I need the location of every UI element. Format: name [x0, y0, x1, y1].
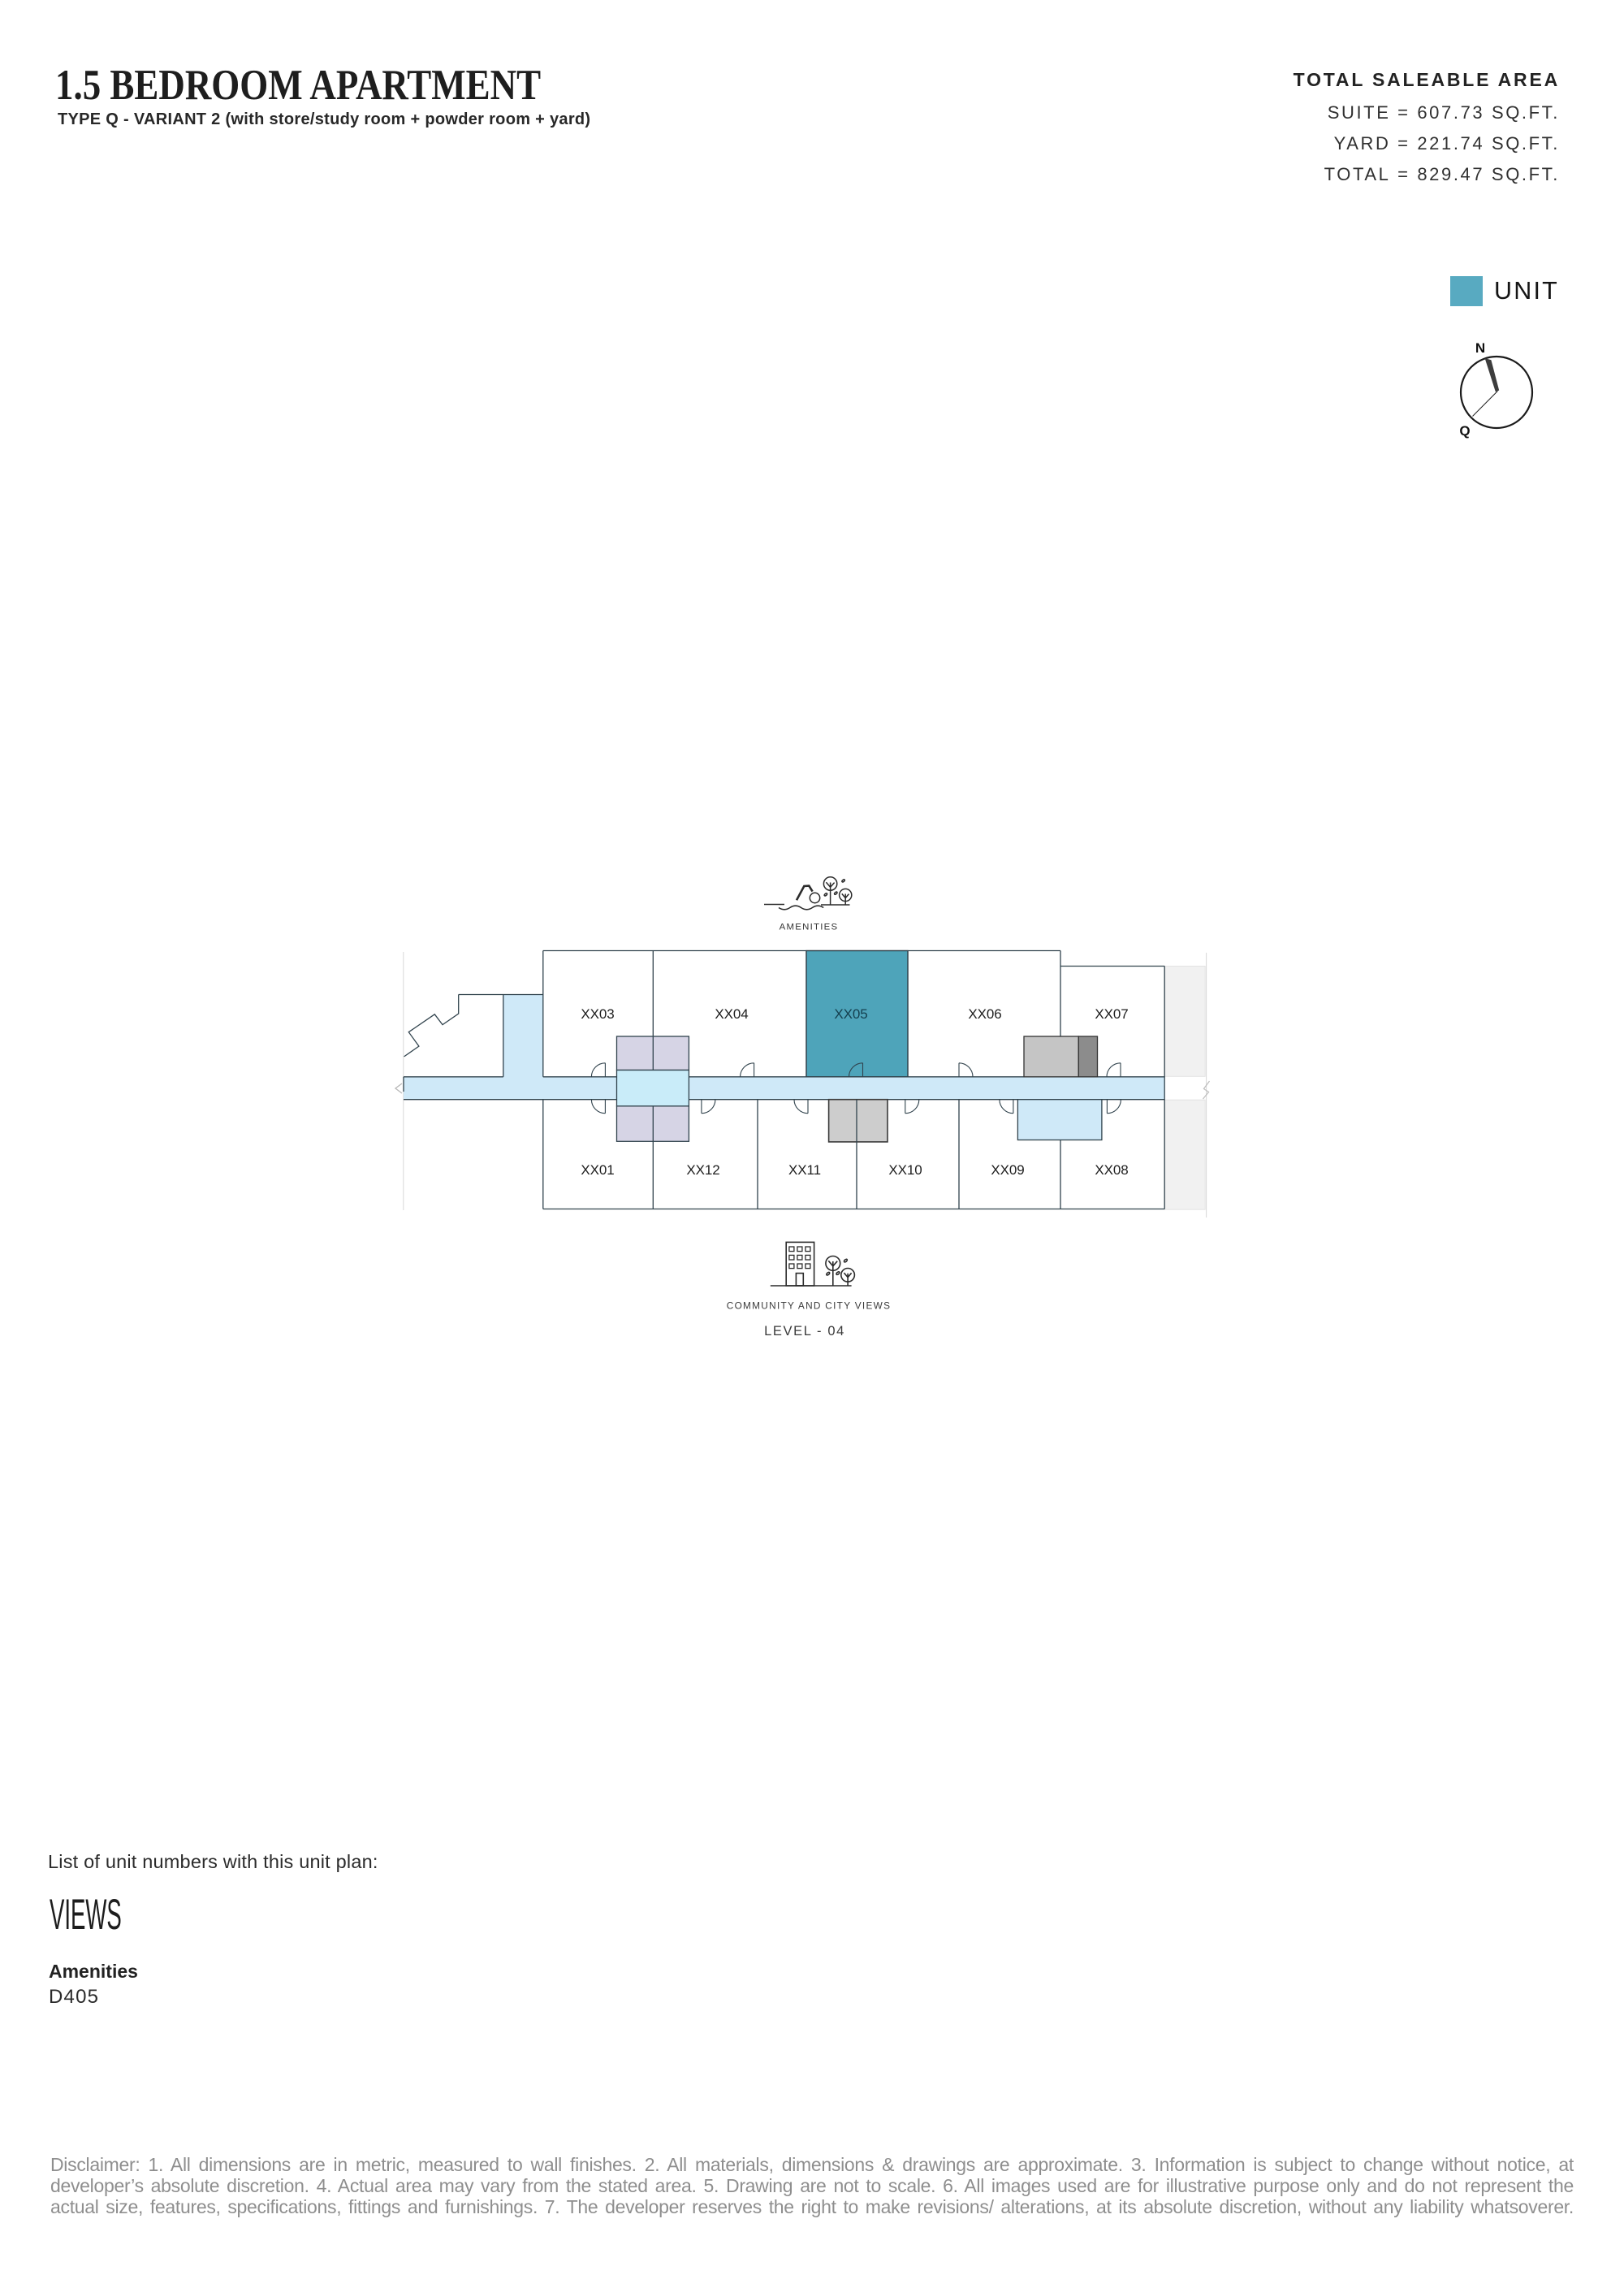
- svg-text:XX05: XX05: [834, 1006, 867, 1022]
- svg-text:XX04: XX04: [715, 1006, 748, 1022]
- svg-text:LEVEL - 04: LEVEL - 04: [764, 1324, 845, 1339]
- svg-text:XX01: XX01: [581, 1162, 614, 1178]
- svg-text:XX12: XX12: [686, 1162, 719, 1178]
- svg-text:XX06: XX06: [968, 1006, 1001, 1022]
- svg-text:XX11: XX11: [788, 1162, 821, 1178]
- svg-text:XX03: XX03: [581, 1006, 614, 1022]
- svg-text:Q: Q: [1459, 423, 1470, 439]
- svg-text:COMMUNITY AND CITY VIEWS: COMMUNITY AND CITY VIEWS: [727, 1300, 892, 1312]
- svg-text:XX08: XX08: [1095, 1162, 1128, 1178]
- svg-text:XX10: XX10: [888, 1162, 922, 1178]
- svg-text:XX09: XX09: [991, 1162, 1024, 1178]
- svg-text:AMENITIES: AMENITIES: [780, 923, 839, 932]
- svg-text:N: N: [1475, 340, 1485, 356]
- svg-text:XX07: XX07: [1095, 1006, 1128, 1022]
